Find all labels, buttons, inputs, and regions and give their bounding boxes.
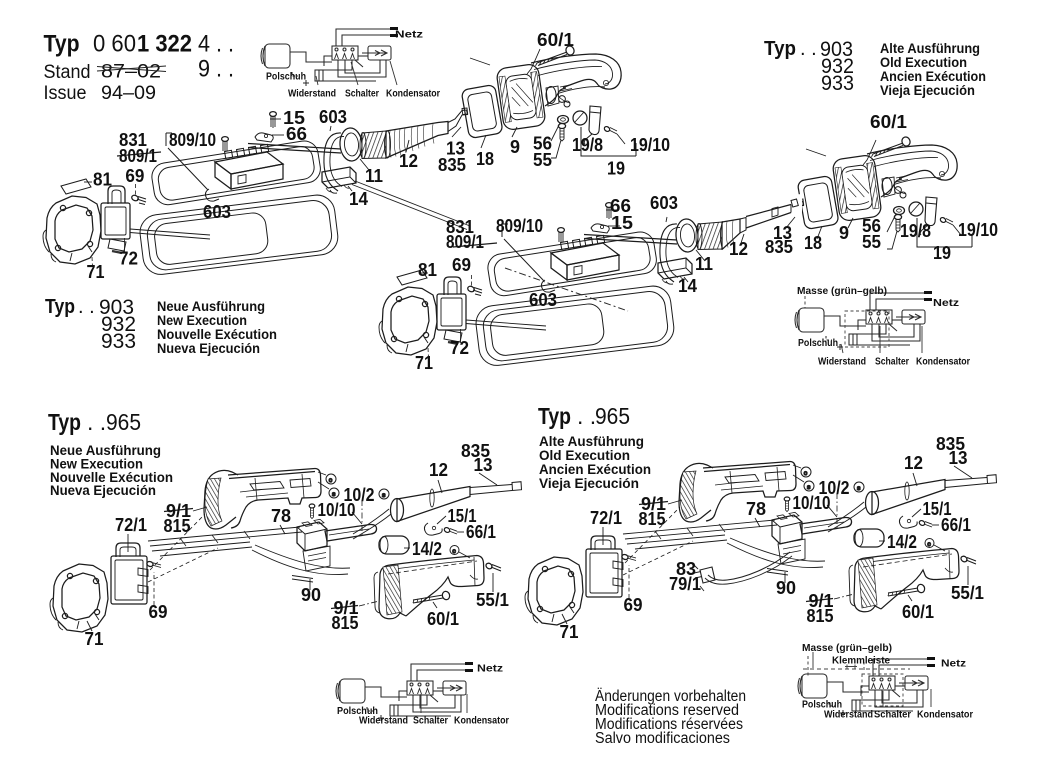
svg-text:603: 603 — [650, 193, 678, 213]
svg-text:965: 965 — [595, 403, 630, 429]
svg-text:4 . .: 4 . . — [198, 31, 234, 58]
svg-text:81: 81 — [93, 170, 112, 190]
svg-text:933: 933 — [101, 330, 136, 353]
svg-text:11: 11 — [695, 254, 713, 274]
svg-text:Polschuh: Polschuh — [798, 337, 838, 349]
svg-text:Nouvelle Exécution: Nouvelle Exécution — [157, 327, 277, 342]
svg-text:Nueva Ejecución: Nueva Ejecución — [50, 482, 156, 498]
svg-text:19: 19 — [607, 159, 625, 179]
svg-text:19/8: 19/8 — [900, 221, 931, 241]
svg-text:Widerstand: Widerstand — [288, 88, 336, 100]
svg-text:Ancien Exécution: Ancien Exécution — [880, 69, 986, 84]
svg-text:Kondensator: Kondensator — [917, 709, 973, 721]
svg-text:Typ: Typ — [538, 403, 571, 429]
svg-text:9: 9 — [510, 137, 520, 157]
svg-text:Nueva Ejecución: Nueva Ejecución — [157, 341, 260, 356]
svg-text:12: 12 — [399, 151, 418, 171]
svg-text:Typ: Typ — [764, 38, 796, 60]
svg-text:Kondensator: Kondensator — [386, 88, 440, 100]
svg-text:Typ: Typ — [44, 31, 80, 58]
svg-text:. .: . . — [87, 409, 106, 435]
svg-text:71: 71 — [415, 353, 433, 373]
svg-text:55: 55 — [533, 150, 552, 170]
svg-text:815: 815 — [164, 516, 191, 536]
svg-text:Salvo modificaciones: Salvo modificaciones — [595, 730, 730, 747]
svg-text:78: 78 — [271, 506, 291, 526]
svg-text:Kondensator: Kondensator — [916, 356, 970, 368]
svg-text:87–02: 87–02 — [101, 62, 161, 83]
svg-text:Netz: Netz — [941, 658, 966, 670]
svg-text:71: 71 — [85, 629, 104, 649]
svg-text:14/2: 14/2 — [412, 539, 442, 559]
svg-text:9 . .: 9 . . — [198, 56, 234, 83]
svg-text:69: 69 — [125, 166, 144, 186]
svg-text:72: 72 — [119, 249, 138, 269]
svg-text:14: 14 — [349, 189, 368, 209]
svg-text:Widerstand: Widerstand — [824, 709, 873, 721]
svg-text:19/10: 19/10 — [958, 220, 998, 240]
svg-text:60/1: 60/1 — [870, 112, 907, 132]
svg-text:Typ: Typ — [48, 409, 81, 435]
svg-text:94–09: 94–09 — [101, 83, 156, 104]
svg-text:Stand: Stand — [44, 62, 91, 83]
svg-text:19/10: 19/10 — [630, 135, 670, 155]
svg-text:60/1: 60/1 — [537, 30, 574, 50]
svg-text:835: 835 — [438, 155, 466, 175]
svg-text:Alte Ausführung: Alte Ausführung — [880, 41, 980, 56]
svg-text:New Execution: New Execution — [157, 313, 247, 328]
svg-text:71: 71 — [87, 262, 105, 282]
svg-text:Widerstand: Widerstand — [359, 715, 408, 727]
svg-text:19: 19 — [933, 243, 951, 263]
svg-text:Schalter: Schalter — [345, 88, 379, 100]
svg-text:14: 14 — [678, 276, 697, 296]
svg-text:Masse (grün–gelb): Masse (grün–gelb) — [802, 642, 892, 654]
svg-text:603: 603 — [529, 290, 557, 310]
svg-text:55/1: 55/1 — [476, 590, 509, 610]
svg-text:10/10: 10/10 — [318, 500, 356, 520]
svg-text:81: 81 — [418, 260, 437, 280]
svg-text:18: 18 — [804, 233, 822, 253]
svg-text:965: 965 — [106, 409, 141, 435]
svg-text:Schalter: Schalter — [413, 715, 448, 727]
svg-text:72/1: 72/1 — [115, 515, 147, 535]
svg-text:Kondensator: Kondensator — [454, 715, 509, 727]
svg-text:66/1: 66/1 — [466, 522, 496, 542]
svg-text:809/1: 809/1 — [119, 146, 157, 166]
svg-text:Neue Ausführung: Neue Ausführung — [157, 299, 265, 314]
svg-text:12: 12 — [429, 460, 448, 480]
svg-text:66: 66 — [286, 124, 307, 144]
svg-text:815: 815 — [332, 613, 359, 633]
svg-text:809/10: 809/10 — [169, 130, 216, 150]
svg-text:60/1: 60/1 — [427, 609, 459, 629]
svg-text:Vieja Ejecución: Vieja Ejecución — [880, 83, 975, 98]
svg-text:Typ: Typ — [45, 296, 75, 318]
svg-text:. .: . . — [577, 403, 596, 429]
svg-text:66: 66 — [610, 196, 631, 216]
svg-text:15: 15 — [611, 213, 633, 233]
svg-text:Widerstand: Widerstand — [818, 356, 866, 368]
svg-text:1 322: 1 322 — [137, 31, 192, 58]
svg-text:Netz: Netz — [477, 663, 503, 675]
svg-text:Masse (grün–gelb): Masse (grün–gelb) — [797, 285, 887, 297]
svg-text:9: 9 — [839, 223, 849, 243]
svg-text:18: 18 — [476, 149, 494, 169]
svg-text:. .: . . — [78, 296, 95, 318]
svg-text:69: 69 — [149, 602, 168, 622]
svg-text:933: 933 — [821, 72, 854, 95]
svg-text:13: 13 — [474, 455, 493, 475]
svg-text:55: 55 — [862, 232, 881, 252]
svg-text:Old Execution: Old Execution — [880, 55, 967, 70]
svg-text:12: 12 — [729, 239, 748, 259]
svg-text:0 60: 0 60 — [93, 31, 136, 58]
svg-text:603: 603 — [203, 202, 231, 222]
svg-text:90: 90 — [301, 585, 321, 605]
svg-text:Schalter: Schalter — [874, 709, 911, 721]
svg-text:809/1: 809/1 — [446, 232, 484, 252]
svg-text:11: 11 — [365, 166, 383, 186]
svg-text:. .: . . — [800, 38, 817, 60]
svg-text:72: 72 — [450, 338, 469, 358]
svg-text:Klemmleiste: Klemmleiste — [832, 655, 890, 667]
svg-text:809/10: 809/10 — [496, 216, 543, 236]
svg-text:79/1: 79/1 — [669, 574, 701, 594]
svg-text:Schalter: Schalter — [875, 356, 909, 368]
svg-text:Issue: Issue — [44, 83, 87, 104]
svg-text:Vieja Ejecución: Vieja Ejecución — [539, 475, 639, 491]
svg-text:603: 603 — [319, 107, 347, 127]
svg-text:69: 69 — [452, 255, 471, 275]
svg-text:835: 835 — [765, 237, 793, 257]
svg-text:Netz: Netz — [395, 29, 423, 41]
svg-text:Polschuh: Polschuh — [266, 71, 306, 83]
svg-text:Netz: Netz — [933, 297, 959, 309]
svg-text:19/8: 19/8 — [572, 135, 603, 155]
